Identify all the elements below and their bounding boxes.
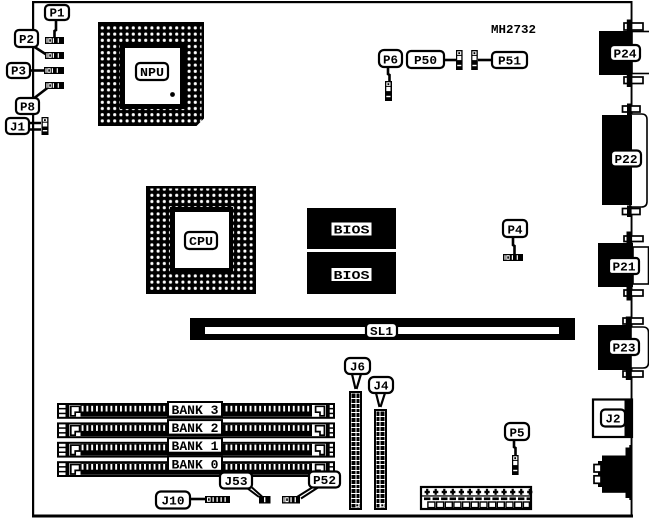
svg-text:P1: P1 <box>50 8 65 21</box>
svg-text:P2: P2 <box>19 34 34 47</box>
svg-text:P8: P8 <box>20 102 35 115</box>
svg-text:P3: P3 <box>11 66 26 79</box>
svg-text:J4: J4 <box>374 381 389 394</box>
svg-text:SL1: SL1 <box>370 326 393 339</box>
svg-text:CPU: CPU <box>189 235 213 249</box>
svg-text:J10: J10 <box>162 496 185 509</box>
svg-text:P6: P6 <box>383 55 398 68</box>
svg-text:BANK 1: BANK 1 <box>172 440 219 454</box>
svg-text:MH2732: MH2732 <box>491 23 536 37</box>
svg-text:P23: P23 <box>613 343 636 356</box>
svg-text:NPU: NPU <box>140 66 164 80</box>
svg-text:BIOS: BIOS <box>334 224 370 238</box>
svg-text:J53: J53 <box>225 476 248 489</box>
svg-text:BIOS: BIOS <box>334 269 370 283</box>
svg-text:J6: J6 <box>350 362 365 375</box>
svg-text:J1: J1 <box>10 122 25 135</box>
svg-text:P50: P50 <box>414 55 437 68</box>
svg-text:P4: P4 <box>508 225 523 238</box>
svg-text:BANK 3: BANK 3 <box>172 404 219 418</box>
svg-text:BANK 0: BANK 0 <box>172 458 219 472</box>
svg-text:P21: P21 <box>613 262 636 275</box>
svg-text:P51: P51 <box>498 56 521 69</box>
svg-text:P52: P52 <box>313 475 336 488</box>
svg-text:BANK 2: BANK 2 <box>172 422 219 436</box>
svg-text:J2: J2 <box>606 414 621 427</box>
svg-text:P24: P24 <box>614 49 637 62</box>
svg-text:P5: P5 <box>510 428 525 441</box>
svg-text:P22: P22 <box>615 154 638 167</box>
